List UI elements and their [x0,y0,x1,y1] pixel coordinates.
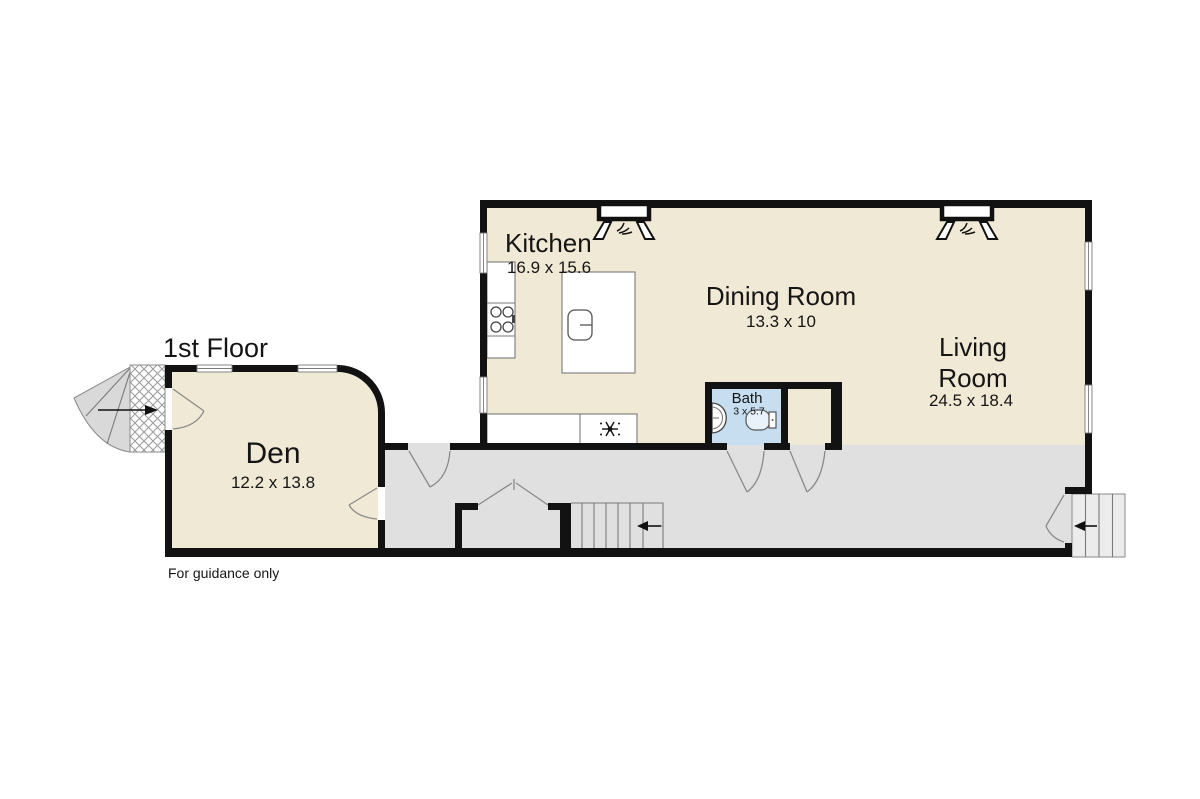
island-sink-icon [568,310,592,340]
window-den-1 [197,365,232,372]
floor-plan-canvas: 1st Floor Kitchen 16.9 x 15.6 Dining Roo… [0,0,1200,799]
room-label-bath: Bath [732,390,763,407]
room-label-living-1: Living [939,332,1007,362]
window-living-1 [1085,242,1092,290]
hallway-floor [385,443,1085,548]
entry-fan-steps [74,366,132,452]
window-living-2 [1085,385,1092,433]
room-dims-kitchen: 16.9 x 15.6 [507,258,591,277]
room-dims-den: 12.2 x 13.8 [231,473,315,492]
room-dims-bath: 3 x 5.7 [733,406,765,418]
floor-title: 1st Floor [163,333,268,363]
room-label-dining: Dining Room [706,281,856,311]
disclaimer-text: For guidance only [168,565,279,581]
room-dims-living: 24.5 x 18.4 [929,391,1013,410]
room-label-kitchen: Kitchen [505,228,592,258]
room-label-living-2: Room [938,363,1007,393]
window-kitchen-2 [480,377,487,413]
room-label-den: Den [245,437,300,470]
window-kitchen-1 [480,233,487,273]
room-dims-dining: 13.3 x 10 [746,312,816,331]
window-den-2 [298,365,337,372]
floor-plan-svg: 1st Floor Kitchen 16.9 x 15.6 Dining Roo… [0,0,1200,799]
